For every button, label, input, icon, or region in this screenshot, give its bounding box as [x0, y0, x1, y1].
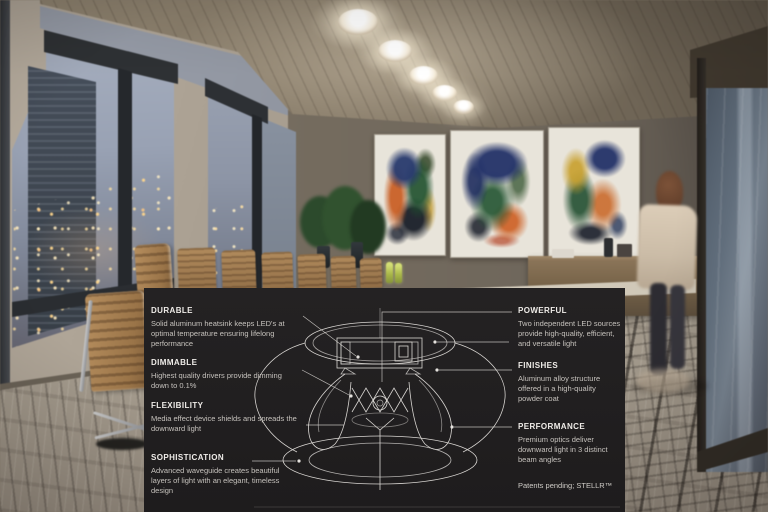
- feature-title: DIMMABLE: [151, 358, 299, 367]
- feature-title: DURABLE: [151, 306, 299, 315]
- feature-finishes: FINISHES Aluminum alloy structure offere…: [518, 361, 622, 404]
- feature-flexibility: FLEXIBILITY Media effect device shields …: [151, 401, 299, 434]
- abstract-painting-left: [374, 134, 446, 256]
- conference-chair: [359, 258, 382, 289]
- feature-title: FINISHES: [518, 361, 622, 370]
- glass-partition: [706, 88, 768, 472]
- feature-title: POWERFUL: [518, 306, 622, 315]
- ceiling-lamp-3: [409, 66, 438, 85]
- feature-description: Premium optics deliver downward light in…: [518, 435, 622, 465]
- feature-durable: DURABLE Solid aluminum heatsink keeps LE…: [151, 306, 299, 349]
- conference-chair: [297, 254, 326, 293]
- ceiling-lamp-2: [378, 40, 412, 62]
- green-bottle: [386, 262, 393, 283]
- green-bottle: [395, 263, 402, 283]
- ceiling-lamp-5: [453, 100, 474, 114]
- ceiling-lamp-4: [432, 85, 457, 101]
- feature-description: Two independent LED sources provide high…: [518, 319, 622, 349]
- feature-description: Aluminum alloy structure offered in a hi…: [518, 374, 622, 404]
- product-marketing-image: DURABLE Solid aluminum heatsink keeps LE…: [0, 0, 768, 512]
- chair-caster-base: [96, 438, 148, 450]
- window-edge-frame: [0, 0, 10, 400]
- woman-feet-blur: [636, 369, 690, 393]
- feature-performance: PERFORMANCE Premium optics deliver downw…: [518, 422, 622, 465]
- feature-description: Highest quality drivers provide dimming …: [151, 371, 299, 391]
- walking-woman: [630, 165, 714, 405]
- feature-powerful: POWERFUL Two independent LED sources pro…: [518, 306, 622, 349]
- feature-sophistication: SOPHISTICATION Advanced waveguide create…: [151, 453, 299, 496]
- feature-title: SOPHISTICATION: [151, 453, 299, 462]
- woman-leg: [650, 283, 667, 375]
- feature-title: FLEXIBILITY: [151, 401, 299, 410]
- conference-chair: [330, 256, 356, 291]
- paper-stack: [552, 249, 574, 258]
- patents-note: Patents pending; STELLR™: [518, 481, 628, 490]
- product-spec-panel: DURABLE Solid aluminum heatsink keeps LE…: [144, 288, 625, 512]
- woman-leg: [670, 285, 685, 369]
- dark-vase: [604, 238, 613, 257]
- feature-description: Media effect device shields and spreads …: [151, 414, 299, 434]
- woman-blazer: [637, 204, 698, 290]
- foreground-chair-back: [85, 290, 152, 392]
- feature-dimmable: DIMMABLE Highest quality drivers provide…: [151, 358, 299, 391]
- feature-description: Advanced waveguide creates beautiful lay…: [151, 466, 299, 496]
- abstract-painting-center: [450, 130, 544, 258]
- abstract-painting-right: [548, 127, 640, 257]
- feature-title: PERFORMANCE: [518, 422, 622, 431]
- feature-description: Solid aluminum heatsink keeps LED's at o…: [151, 319, 299, 349]
- ceiling-lamp-1: [338, 9, 378, 35]
